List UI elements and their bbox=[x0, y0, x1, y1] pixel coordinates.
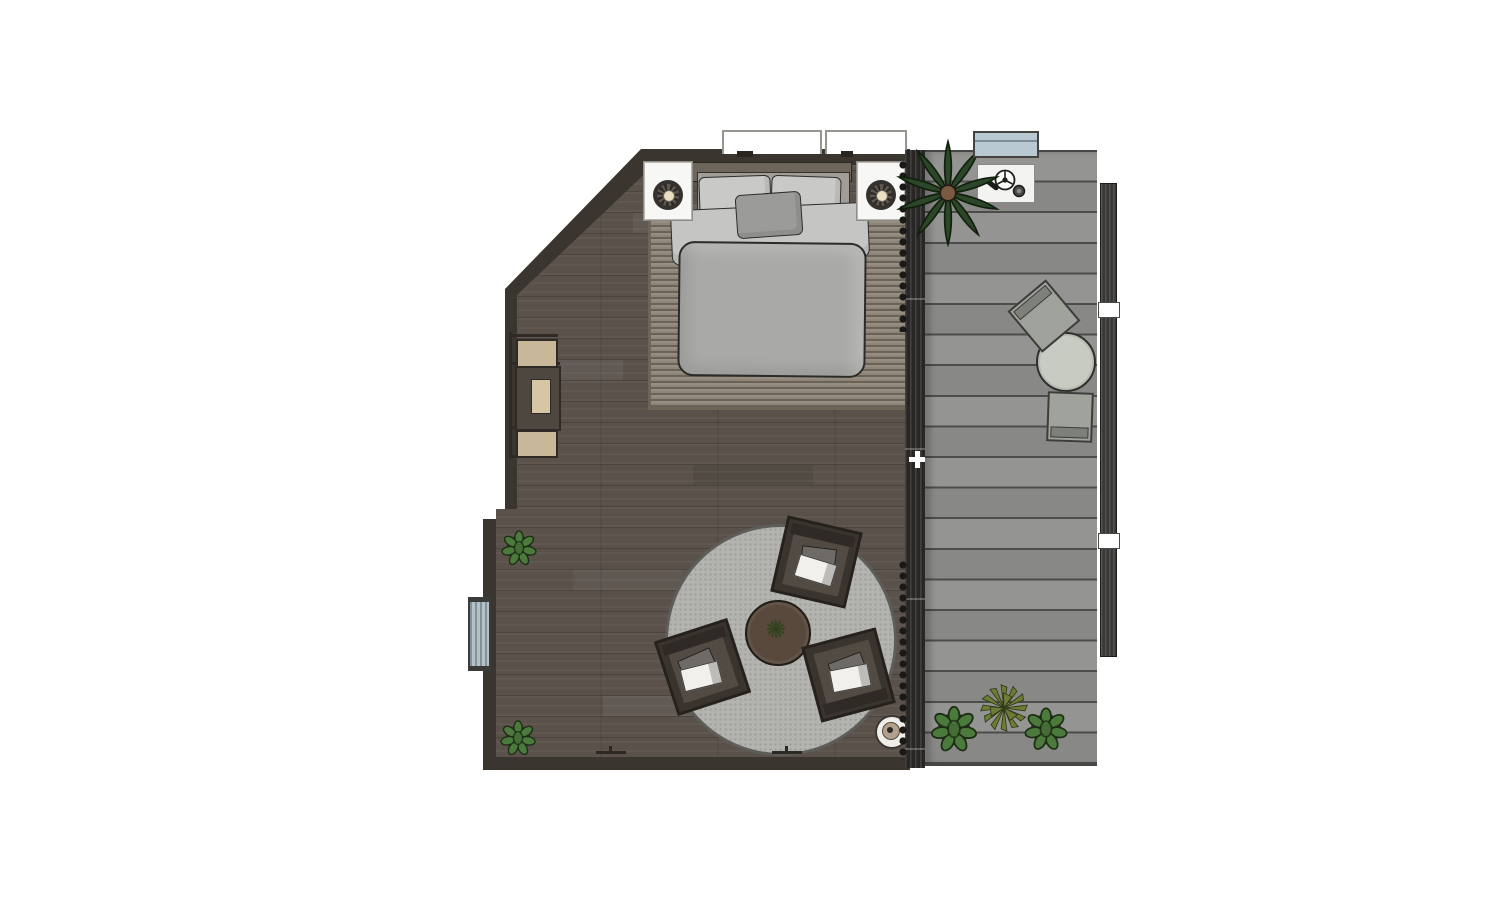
railing-bracket bbox=[1098, 302, 1120, 318]
floor-plank-highlight bbox=[573, 570, 683, 590]
wall-vent bbox=[737, 151, 753, 157]
deck-chair-back bbox=[1050, 426, 1088, 438]
bed-lumbar-pillow bbox=[735, 191, 804, 239]
coffee-table-plant bbox=[765, 618, 787, 640]
ac-unit bbox=[973, 131, 1039, 158]
deck-chair-lower bbox=[1046, 391, 1094, 443]
door-handle-icon bbox=[909, 451, 926, 468]
curtain-bunch-bottom bbox=[898, 560, 908, 760]
desk-shelf-bottom bbox=[516, 430, 558, 458]
floor-plank-shade bbox=[693, 465, 813, 485]
potted-plant bbox=[496, 525, 542, 571]
table-lamp-icon bbox=[653, 180, 683, 210]
desk-shelf-top bbox=[516, 339, 558, 368]
potted-plant bbox=[495, 715, 541, 761]
wall-vent bbox=[841, 151, 853, 157]
nightstand-left bbox=[644, 162, 692, 220]
desk-drawer-inner bbox=[531, 379, 551, 414]
wall-outlet bbox=[609, 746, 612, 754]
bed-duvet bbox=[677, 241, 866, 378]
deck-railing bbox=[1100, 183, 1117, 657]
railing-bracket bbox=[1098, 533, 1120, 549]
desk-rail bbox=[509, 332, 512, 458]
wall-outlet bbox=[785, 746, 788, 754]
ac-unit-seam bbox=[975, 140, 1037, 142]
desk-rail bbox=[512, 334, 558, 337]
floorplan-canvas bbox=[0, 0, 1500, 900]
planter-bush-right bbox=[1018, 701, 1074, 757]
wall-radiator bbox=[468, 597, 491, 671]
